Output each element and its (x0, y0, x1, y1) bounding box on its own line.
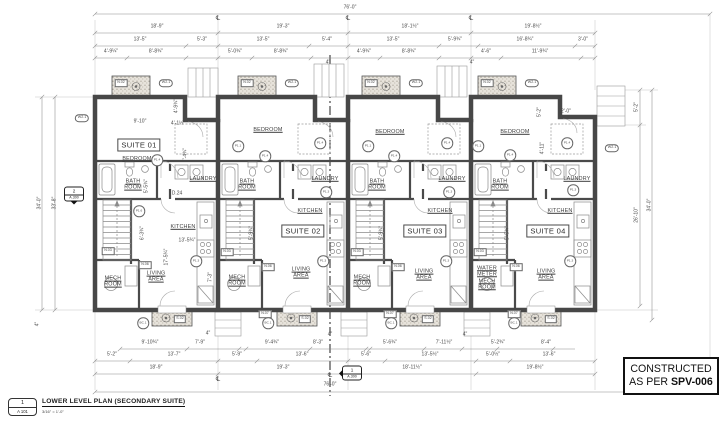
room-label: KITCHEN (547, 208, 572, 214)
dim-label: 9'-10" (134, 120, 147, 125)
centerline-symbol: ℄ (346, 16, 350, 23)
room-label: LAUNDRY (563, 176, 590, 182)
dim-label: 5'-9¾" (250, 226, 255, 240)
ref-tag: N.03 (221, 248, 234, 256)
room-label: LAUNDRY (311, 176, 338, 182)
dim-label: 13'-5" (257, 38, 270, 43)
ref-tag: W2.1 (409, 79, 423, 87)
ref-tag: P1.1 (472, 140, 484, 152)
room-label: LIVING AREA (292, 267, 311, 280)
dim-label: 5'-5¾" (145, 179, 150, 193)
dim-label: 33'-8" (53, 197, 58, 210)
detail-number: 1 (9, 399, 36, 408)
ref-tag: W2.1 (285, 79, 299, 87)
dim-label: 13'-5¾" (179, 239, 196, 244)
ref-tag: N.02 (365, 79, 378, 87)
dim-label: 17'-5¾" (165, 249, 170, 266)
dim-label: 18'-11½" (402, 366, 421, 371)
ref-tag: P1.4 (259, 150, 271, 162)
dim-label: 8'-4" (541, 341, 551, 346)
ref-tag: P1.4 (504, 149, 516, 161)
dim-label: 5'-0½" (486, 353, 500, 358)
ref-tag: P1.4 (151, 154, 163, 166)
drawing-scale: 3/16" = 1'-0" (42, 409, 185, 414)
ref-tag: BC.1 (262, 317, 274, 329)
ref-tag: P1.1 (232, 140, 244, 152)
dim-label: 13'-5½" (422, 353, 439, 358)
room-label: LIVING AREA (147, 271, 166, 284)
room-label: BATH ROOM (238, 179, 256, 192)
suite-label: SUITE 01 (117, 139, 160, 152)
dim-label: 5'-2¾" (491, 341, 505, 346)
centerline-symbol: ℄ (469, 16, 473, 23)
ref-tag: P1.3 (567, 184, 579, 196)
dim-label: 4'-1½" (171, 122, 185, 127)
dim-label: 19'-3" (277, 25, 290, 30)
room-label: BEDROOM (375, 129, 404, 135)
ref-tag: BC.1 (385, 317, 397, 329)
dim-label: 4'-9¾" (357, 50, 371, 55)
room-label: LAUNDRY (189, 176, 216, 182)
ref-tag: P1.6 (133, 205, 145, 217)
ref-tag: N.06 (392, 263, 405, 271)
ref-tag: P1.4 (561, 137, 573, 149)
section-marker: 2A.300 (64, 187, 84, 202)
ref-tag: W2.1 (159, 79, 173, 87)
room-label: KITCHEN (170, 224, 195, 230)
dim-label: 8'-8¾" (274, 50, 288, 55)
ref-tag: N.03 (474, 248, 487, 256)
dim-label: 4'-6" (481, 50, 491, 55)
ref-tag: N.02 (481, 79, 494, 87)
dim-label: 4'-9¼" (104, 50, 118, 55)
dim-label: 7'-3" (209, 272, 214, 282)
ref-tag: S.02 (299, 315, 311, 323)
dim-label: 4" (463, 333, 468, 338)
dim-label: 3'-0" (578, 38, 588, 43)
dim-label: 13'-6" (543, 353, 556, 358)
section-marker: 1A.300 (342, 366, 362, 381)
ref-tag: P1.4 (314, 137, 326, 149)
dim-label: 13'-6" (296, 353, 309, 358)
ref-tag: W2.1 (605, 144, 619, 152)
dim-label: 5'-6¾" (383, 341, 397, 346)
dim-label: 6'-3¾" (141, 226, 146, 240)
ref-tag: S.02 (422, 315, 434, 323)
drawing-sheet: 76'-0"18'-9"19'-3"18'-1½"19'-8½"13'-5"5'… (0, 0, 720, 422)
dim-label: 7'-9" (195, 341, 205, 346)
ref-tag: N.06 (139, 261, 152, 269)
dim-label: 5'-6" (361, 353, 371, 358)
dim-label: 4'-11" (541, 142, 546, 154)
room-label: BATH ROOM (368, 179, 386, 192)
dim-label: 5'-0¾" (228, 50, 242, 55)
dim-label: 9'-10¾" (142, 341, 159, 346)
ref-tag: P1.3 (320, 186, 332, 198)
stamp-line-2: AS PER SPV-006 (626, 376, 716, 389)
room-label: BEDROOM (500, 129, 529, 135)
ref-tag: N.06 (262, 263, 275, 271)
dim-label: 13'-5" (387, 38, 400, 43)
room-label: LIVING AREA (537, 269, 556, 282)
ref-tag: BC.1 (508, 317, 520, 329)
ref-tag: W2.1 (75, 114, 89, 122)
dim-label: 18'-9" (151, 25, 164, 30)
suite-label: SUITE 02 (281, 225, 324, 238)
ref-tag: N.03 (102, 247, 115, 255)
dim-label: 5'-5¾" (506, 226, 511, 240)
ref-tag: P1.3 (190, 255, 202, 267)
drawing-title: LOWER LEVEL PLAN (SECONDARY SUITE) (42, 398, 185, 407)
construction-stamp: CONSTRUCTED AS PER SPV-006 (623, 357, 719, 395)
room-label: WATER METER MECH ROOM (477, 265, 497, 291)
dim-label: 5'-9" (232, 353, 242, 358)
dim-label: 19'-8½" (527, 366, 544, 371)
dim-label: 5'-3" (197, 38, 207, 43)
ref-tag: P1.4 (388, 150, 400, 162)
dim-label: 76'-0" (344, 6, 357, 11)
room-label: MECH ROOM (353, 275, 371, 288)
ref-tag: W2.1 (525, 79, 539, 87)
stamp-code: SPV-006 (671, 376, 713, 388)
dim-label: 19'-8½" (525, 25, 542, 30)
dim-label: 5'-2" (107, 353, 117, 358)
dim-label: 5'-2" (635, 102, 640, 112)
room-label: MECH ROOM (228, 275, 246, 288)
dim-label: 13'-7" (168, 353, 181, 358)
ref-tag: P1.3 (443, 186, 455, 198)
dim-label: 18'-9" (150, 366, 163, 371)
centerline-symbol: ℄ (216, 16, 220, 23)
stamp-line-1: CONSTRUCTED (626, 363, 716, 376)
dim-label: 5'-9¾" (448, 38, 462, 43)
sheet-reference: A 101 (9, 408, 36, 415)
dim-label: 5'-4" (322, 38, 332, 43)
dim-label: 16'-8¾" (517, 38, 534, 43)
room-label: MECH ROOM (104, 276, 122, 289)
dim-label: 2'-0" (561, 110, 571, 115)
dim-label: 13'-5" (134, 38, 147, 43)
dim-label: 4" (328, 333, 333, 338)
dim-label: 9'-4¾" (265, 341, 279, 346)
ref-tag: S.02 (174, 315, 186, 323)
ref-tag: P1.1 (362, 140, 374, 152)
ref-tag: P1.4 (441, 137, 453, 149)
dim-label: 76'-0" (324, 383, 337, 388)
dim-label: 4" (326, 61, 331, 66)
room-label: KITCHEN (427, 208, 452, 214)
dim-label: 5'-2" (538, 107, 543, 117)
dim-label: D.24 (172, 192, 183, 197)
room-label: BEDROOM (122, 156, 151, 162)
room-label: BATH ROOM (491, 179, 509, 192)
dim-label: 18'-1½" (402, 25, 419, 30)
dim-label: 8'-8¾" (402, 50, 416, 55)
dim-label: 7'-11½" (436, 341, 453, 346)
ref-tag: N.06 (510, 263, 523, 271)
ref-tag: P1.3 (317, 255, 329, 267)
centerline-symbol: ℄ (216, 377, 220, 384)
dim-label: 5'-9¾" (380, 226, 385, 240)
dim-label: 4" (206, 332, 211, 337)
dim-label: 34'-0" (38, 197, 43, 210)
room-label: BEDROOM (253, 127, 282, 133)
ref-tag: N.03 (351, 248, 364, 256)
room-label: BATH ROOM (124, 179, 142, 192)
stamp-line-2-prefix: AS PER (629, 376, 668, 388)
ref-tag: S.02 (545, 315, 557, 323)
suite-label: SUITE 03 (403, 225, 446, 238)
dim-label: 26'-10" (635, 207, 640, 223)
dim-label: 8'-8¾" (149, 50, 163, 55)
dim-label: 11'-9¾" (532, 50, 549, 55)
dim-label: 4" (470, 61, 475, 66)
room-label: LAUNDRY (438, 176, 465, 182)
ref-tag: N.02 (241, 79, 254, 87)
dim-label: 4'-9¾" (175, 99, 180, 113)
dim-label: 34'-0" (648, 199, 653, 212)
dim-label: 4" (36, 322, 41, 327)
centerline-symbol: ℄ (328, 373, 332, 380)
dim-label: 19'-3" (277, 366, 290, 371)
room-label: KITCHEN (297, 208, 322, 214)
dim-label: 8'-3" (313, 341, 323, 346)
ref-tag: BC.1 (137, 317, 149, 329)
dim-label: 7'-4¾" (184, 148, 189, 162)
detail-reference-badge: 1 A 101 (8, 398, 37, 416)
suite-label: SUITE 04 (526, 225, 569, 238)
drawing-title-block: 1 A 101 LOWER LEVEL PLAN (SECONDARY SUIT… (8, 398, 185, 416)
ref-tag: P1.3 (440, 255, 452, 267)
ref-tag: N.02 (115, 79, 128, 87)
ref-tag: P1.3 (564, 255, 576, 267)
room-label: LIVING AREA (415, 269, 434, 282)
annotations-layer: 76'-0"18'-9"19'-3"18'-1½"19'-8½"13'-5"5'… (0, 0, 720, 422)
